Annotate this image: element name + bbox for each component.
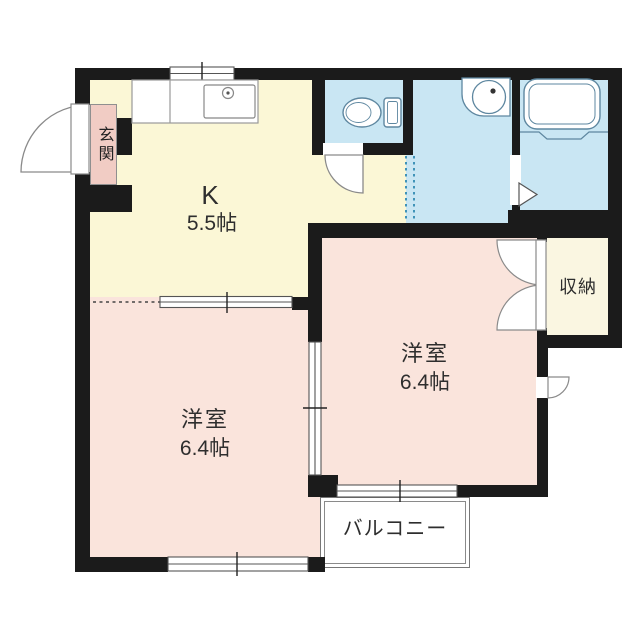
- bedroom-left-window-icon: [168, 552, 308, 576]
- washbasin-icon: [462, 78, 510, 116]
- bath-folding-door-icon: [519, 183, 537, 206]
- toilet-door-swing-icon: [325, 155, 363, 193]
- bedroom-right-label: 洋室: [365, 341, 485, 366]
- kitchen-size: 5.5帖: [150, 212, 274, 236]
- toilet-icon: [343, 98, 401, 127]
- fixtures-layer: [0, 0, 640, 640]
- bedroom-left-label: 洋室: [145, 407, 265, 432]
- entrance-door-leaf-icon: [71, 104, 89, 174]
- bedroom-right-window-icon: [337, 480, 457, 502]
- storage-double-door-icon: [497, 240, 546, 330]
- east-doorway: [536, 377, 549, 398]
- bathtub-icon: [520, 79, 608, 139]
- balcony-label: バルコニー: [322, 518, 468, 541]
- bedroom-right-size: 6.4帖: [365, 371, 485, 395]
- kitchen-label: K: [150, 181, 270, 211]
- kitchen-sliding-door-icon: [160, 292, 292, 313]
- east-door-swing-icon: [548, 377, 569, 398]
- kitchen-counter-icon: [132, 80, 258, 123]
- storage-label: 収納: [548, 277, 608, 298]
- floor-plan: 玄関: [0, 0, 640, 640]
- bedroom-left-size: 6.4帖: [145, 437, 265, 461]
- toilet-doorway: [323, 143, 363, 155]
- bedrooms-sliding-door-icon: [303, 342, 327, 475]
